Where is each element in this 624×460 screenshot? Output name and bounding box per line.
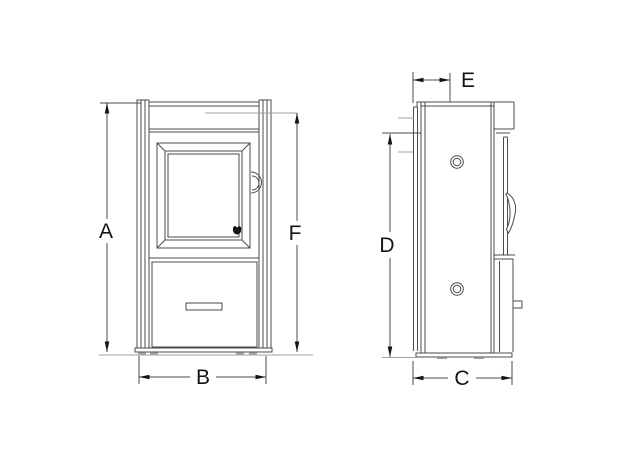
right-panel-outline — [259, 100, 271, 348]
side-base — [416, 353, 512, 359]
air-control-knob — [513, 301, 522, 308]
arrowhead-down-icon — [295, 342, 300, 353]
foot-mark — [236, 353, 244, 355]
front-right-side-panel — [259, 100, 271, 348]
dimension-label-C: C — [454, 367, 469, 390]
base-plinth — [416, 353, 512, 357]
arrowhead-left-icon — [413, 376, 424, 381]
dimension-label-E: E — [461, 69, 475, 92]
dimension-C: C — [413, 361, 512, 390]
door-mid-frame — [165, 151, 242, 240]
ash-drawer-handle — [186, 303, 222, 310]
stove-side-view — [398, 102, 522, 359]
side-rear-panel — [398, 102, 421, 351]
dimension-A: A — [99, 103, 141, 352]
front-lower-compartment — [149, 258, 259, 347]
arrowhead-up-icon — [105, 103, 110, 114]
arrowhead-left-icon — [413, 78, 424, 83]
dimension-label-A: A — [99, 220, 113, 243]
dimension-label-B: B — [196, 366, 210, 389]
arrowhead-up-icon — [388, 134, 393, 145]
arrowhead-right-icon — [256, 375, 267, 380]
side-main-panel — [421, 102, 494, 353]
left-panel-outline — [137, 100, 149, 348]
front-glass-door — [157, 143, 262, 248]
dimension-label-D: D — [379, 234, 394, 257]
front-top-band — [149, 102, 259, 132]
front-left-side-panel — [137, 100, 149, 348]
arrowhead-right-icon — [502, 376, 513, 381]
front-base — [135, 348, 272, 354]
stove-front-view — [99, 100, 313, 355]
arrowhead-down-icon — [105, 342, 110, 353]
foot-mark — [437, 357, 447, 359]
arrowhead-right-icon — [440, 78, 451, 83]
dimension-D: D — [379, 133, 421, 358]
door-handle-inner-edge — [252, 176, 259, 190]
rear-panel-top-step — [414, 102, 422, 107]
foot-mark — [474, 357, 484, 359]
arrowhead-left-icon — [139, 375, 150, 380]
foot-mark — [138, 353, 146, 355]
drawing-svg: A F B E — [0, 0, 624, 460]
base-plinth — [135, 348, 272, 352]
stove-dimension-drawing: A F B E — [0, 0, 624, 460]
side-panel-outline — [421, 102, 494, 353]
dimension-B: B — [139, 356, 266, 389]
dimension-label-F: F — [289, 222, 302, 245]
arrowhead-up-icon — [295, 113, 300, 124]
dimension-E: E — [413, 69, 475, 103]
foot-mark — [249, 353, 257, 355]
arrowhead-down-icon — [388, 347, 393, 358]
foot-mark — [150, 353, 158, 355]
